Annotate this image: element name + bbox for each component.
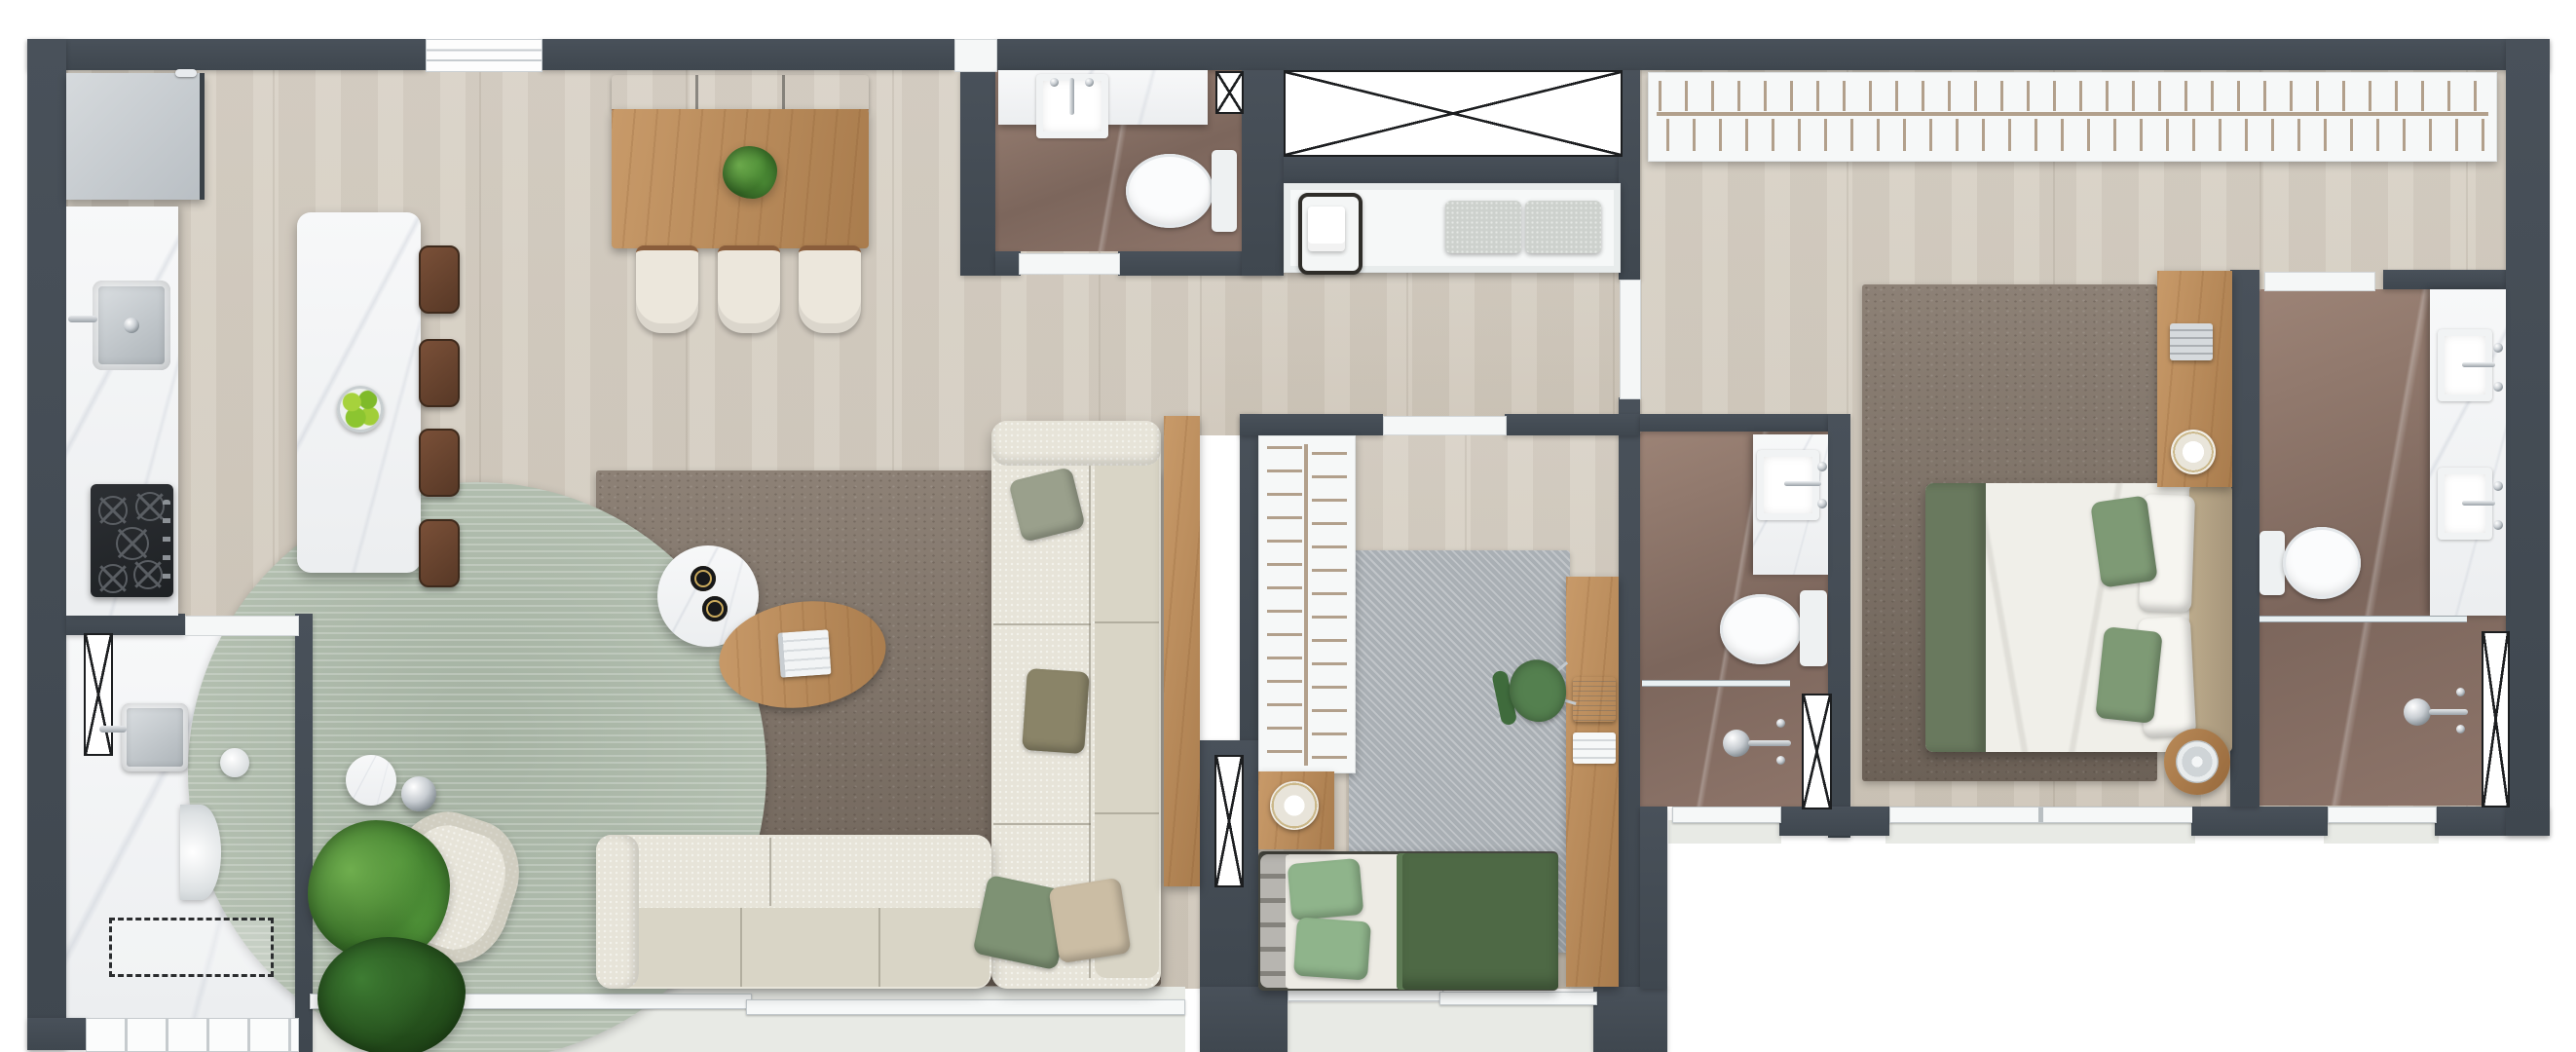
throw-pillow-beige: [1048, 878, 1131, 964]
window-sill-bathroom2: [1672, 807, 1781, 823]
shower-glass-bathroom2: [1642, 680, 1790, 687]
wall-left: [27, 39, 66, 1050]
pillow-green-bedroom2: [1293, 917, 1371, 980]
wall-bedroom2-top-left: [1240, 414, 1383, 435]
toilet-tank-bathroom2: [1800, 590, 1827, 666]
sliding-door-track-bedroom2-b: [1439, 992, 1597, 1005]
sliding-door-track-living-b: [746, 999, 1185, 1015]
faucet-icon: [2462, 362, 2495, 367]
faucet-knob-icon: [2493, 343, 2503, 353]
wall-below-shaft: [1284, 153, 1619, 183]
hanger-ticks-left: [1267, 446, 1302, 764]
balcony-bedroom2: [1286, 1002, 1617, 1052]
hanger-ticks-bottom: [1666, 119, 2484, 151]
toilet-bathroom3: [2283, 527, 2361, 599]
wall-bath2-outer: [1640, 807, 1667, 989]
faucet-knob-icon: [1817, 499, 1827, 508]
bar-stool: [419, 245, 460, 314]
shaft-bathroom3: [2482, 631, 2510, 808]
sink-drain-icon: [124, 318, 139, 333]
sofa-arm-left: [596, 835, 639, 989]
bed-foot-throw-master: [1925, 483, 1986, 752]
fridge-handle-icon: [175, 69, 197, 77]
shaft-bedroom2-wall: [1214, 755, 1244, 887]
burner-icon: [116, 527, 149, 560]
headboard-bedroom2: [1260, 854, 1288, 988]
burner-icon: [135, 492, 165, 521]
bar-stool: [419, 429, 460, 497]
nightstand-tray-icon: [1270, 781, 1319, 830]
decor-sphere: [401, 776, 436, 811]
wall-service-divider: [66, 614, 185, 635]
shaft-bathroom2: [1802, 694, 1832, 809]
toilet-tank-bathroom3: [2259, 531, 2285, 595]
wall-bath1-left: [960, 70, 995, 276]
sofa-back-cushions-horizontal: [598, 908, 989, 987]
laundry-sink: [122, 703, 188, 771]
wardrobe-rod: [1304, 444, 1308, 766]
closet-rod: [1657, 112, 2488, 116]
door-bedroom2: [1383, 416, 1507, 435]
shower-head-bathroom3: [2404, 698, 2431, 726]
wall-right: [2506, 39, 2550, 836]
bar-stool: [419, 339, 460, 407]
wall-bottom-seg2: [2191, 807, 2328, 836]
side-table-round: [346, 755, 396, 806]
shaft-technical-large: [1284, 70, 1623, 157]
laundry-faucet-icon: [99, 726, 127, 733]
notepad: [1573, 733, 1616, 764]
round-nightstand-master: [2164, 729, 2230, 795]
plant-monstera: [317, 937, 466, 1052]
shower-head-bathroom2: [1723, 730, 1750, 757]
bench-cushion: [1445, 201, 1521, 253]
service-louver-windows: [86, 1018, 299, 1052]
shower-arm-icon: [2429, 709, 2468, 715]
toilet-bathroom2: [1720, 594, 1802, 664]
wall-bedroom2-left: [1240, 414, 1258, 740]
towel: [1308, 207, 1345, 251]
wall-service-right: [295, 614, 313, 1052]
ledge-master-bedroom: [1885, 820, 2195, 844]
laptop: [1573, 677, 1616, 722]
kitchen-faucet-icon: [68, 316, 97, 322]
book: [777, 629, 831, 678]
burner-icon: [133, 560, 163, 589]
wardrobe-bedroom2: [1258, 435, 1356, 773]
pillow-green-bedroom2: [1288, 858, 1364, 920]
gas-cooktop: [91, 484, 173, 597]
faucet-knob-icon: [2493, 481, 2503, 491]
bench-cushion: [1525, 201, 1601, 253]
entry-door: [954, 39, 997, 72]
wall-bedroom2-balcony-right: [1593, 987, 1667, 1052]
window-sill-master: [1889, 807, 2192, 823]
book-on-nightstand: [2170, 323, 2213, 360]
cup-icon: [691, 566, 716, 591]
pillow-green-master: [2090, 495, 2158, 587]
faucet-bathroom1-icon: [1069, 78, 1074, 115]
wall-hall-right-lower: [1619, 397, 1640, 989]
shower-knob-icon: [1776, 719, 1785, 728]
shaft-bathroom1: [1215, 71, 1244, 114]
sofa-arm-top: [991, 421, 1161, 466]
shower-knob-icon: [2456, 725, 2465, 733]
table-plant: [723, 146, 777, 199]
burner-icon: [98, 564, 128, 593]
door-bathroom3: [2264, 272, 2375, 291]
wall-bottom-left-corner: [27, 1018, 88, 1050]
ledge-bathroom2: [1668, 820, 1781, 844]
shower-knob-icon: [2456, 688, 2465, 696]
sofa-seat-seam: [993, 623, 1091, 625]
wall-bath1-bottom-left: [995, 251, 1021, 276]
shower-glass-bathroom3: [2259, 616, 2467, 622]
towel-basket: [1298, 193, 1363, 275]
hanger-ticks-top: [1659, 81, 2484, 111]
pillow-green-master: [2095, 626, 2162, 724]
faucet-bathroom2-icon: [1784, 481, 1821, 486]
console-behind-sofa: [1164, 416, 1200, 886]
burner-icon: [98, 496, 128, 525]
dining-chair: [718, 245, 780, 333]
floor-plan: [0, 0, 2576, 1052]
faucet-icon: [2462, 501, 2495, 506]
desk-bedroom2: [1566, 577, 1619, 987]
door-hallway-suite: [1620, 280, 1641, 399]
refrigerator: [66, 73, 205, 200]
dining-chair: [799, 245, 861, 333]
wall-bedroom2-balcony-left: [1200, 987, 1288, 1052]
wall-bath3-top: [2383, 270, 2506, 289]
bar-stool: [419, 519, 460, 587]
dining-chair: [636, 245, 698, 333]
cup-icon: [702, 596, 728, 621]
wall-master-right: [2230, 270, 2259, 807]
walk-in-closet-master: [1648, 72, 2497, 162]
future-appliance-dashed: [109, 918, 274, 977]
dining-bench: [612, 75, 869, 113]
dish-lamp-icon: [2171, 430, 2216, 474]
hanger-ticks-right: [1312, 452, 1347, 766]
toilet-tank-bathroom1: [1212, 150, 1237, 232]
sofa-seat-seam: [769, 838, 771, 906]
shaft-service: [84, 633, 113, 756]
faucet-knob-icon: [1817, 462, 1827, 471]
headboard-master: [2189, 485, 2232, 752]
wall-top-mid: [541, 39, 954, 70]
toilet-bathroom1: [1126, 154, 1213, 228]
kitchen-sink: [93, 281, 170, 370]
wall-bedroom2-top-right: [1505, 414, 1640, 435]
door-bathroom1: [1019, 253, 1120, 275]
wall-bath2-top: [1640, 414, 1828, 432]
throw-pillow-olive: [1022, 668, 1090, 754]
faucet-knob-icon: [2493, 382, 2503, 392]
wall-top-right: [995, 39, 2550, 70]
blanket-bedroom2: [1397, 853, 1558, 990]
window-dining: [426, 39, 542, 72]
ledge-bathroom3: [2324, 820, 2439, 844]
wall-bath1-right: [1242, 70, 1284, 276]
faucet-knob-icon: [1085, 78, 1094, 87]
window-sill-bathroom3: [2328, 807, 2437, 823]
washing-machine: [180, 805, 221, 900]
fruit-bowl: [337, 386, 384, 432]
faucet-knob-icon: [2493, 520, 2503, 530]
faucet-knob-icon: [1050, 78, 1059, 87]
wall-top-left: [27, 39, 426, 70]
silver-bowl-icon: [2176, 740, 2219, 783]
sofa-seat-seam: [993, 823, 1091, 825]
door-service-area: [185, 616, 299, 636]
shower-arm-icon: [1748, 740, 1791, 746]
cooktop-knobs-icon: [163, 500, 170, 583]
wall-bottom-seg1: [1779, 807, 1889, 836]
decor-bowl: [220, 748, 249, 777]
shower-knob-icon: [1776, 756, 1785, 765]
